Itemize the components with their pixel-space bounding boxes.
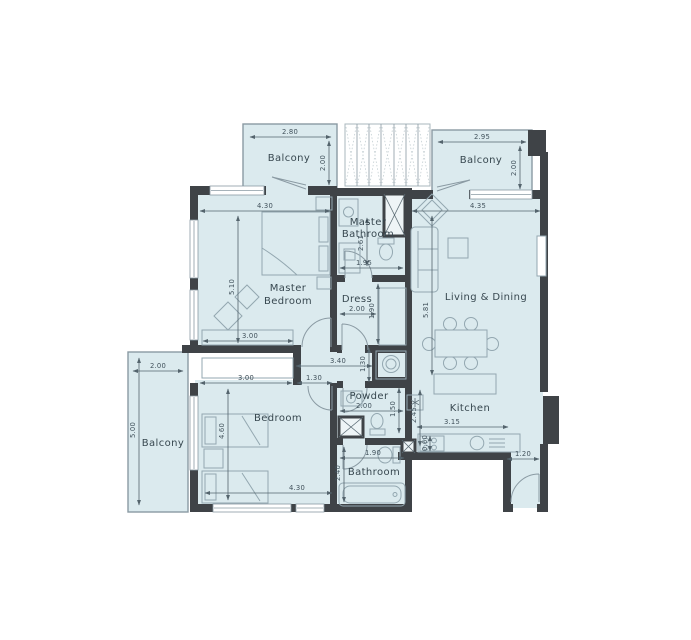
chair-icon xyxy=(444,318,457,331)
label-balcony-left: Balcony xyxy=(142,438,184,449)
island-counter-icon xyxy=(434,374,496,394)
dim-counter-depth: 0.60 xyxy=(421,435,429,451)
dim-living-length: 5.81 xyxy=(422,302,430,318)
dim-master-bedroom-length: 5.10 xyxy=(228,279,236,295)
dim-corridor-width: 1.30 xyxy=(359,356,367,372)
label-powder: Powder xyxy=(350,391,389,402)
label-balcony-top-right: Balcony xyxy=(460,155,502,166)
label-dress: Dress xyxy=(342,294,372,305)
floor-plan-canvas: 2.80 2.95 4.30 4.35 1.95 2.00 3.00 3.40 … xyxy=(0,0,691,640)
dim-balcony-tr-depth: 2.00 xyxy=(510,160,518,176)
chair-icon xyxy=(423,338,436,351)
dim-kitchen-length: 2.45 xyxy=(410,407,418,423)
dim-kitchen-width: 3.15 xyxy=(444,418,460,426)
dim-powder-width: 2.00 xyxy=(356,402,372,410)
dim-balcony-tl-depth: 2.00 xyxy=(319,155,327,171)
dim-master-bathroom-width: 1.95 xyxy=(356,259,372,267)
dim-bedroom-total-width: 4.30 xyxy=(289,484,305,492)
dim-balcony-left-length: 5.00 xyxy=(129,422,137,438)
label-master-bedroom-1: Master xyxy=(270,283,307,294)
chair-icon xyxy=(465,357,478,370)
sofa-icon xyxy=(411,227,438,292)
floor-plan-svg: 2.80 2.95 4.30 4.35 1.95 2.00 3.00 3.40 … xyxy=(0,0,691,640)
dim-bedroom-width: 3.00 xyxy=(238,374,254,382)
dim-balcony-tr-width: 2.95 xyxy=(474,133,490,141)
double-bed-icon xyxy=(262,212,330,275)
label-master-bedroom-2: Bedroom xyxy=(264,296,312,307)
dim-master-bedroom-width: 4.30 xyxy=(257,202,273,210)
label-bedroom: Bedroom xyxy=(254,413,302,424)
louver-panel xyxy=(345,124,430,186)
toilet-icon xyxy=(371,414,383,429)
label-living-dining: Living & Dining xyxy=(445,292,527,303)
dim-balcony-tl-width: 2.80 xyxy=(282,128,298,136)
label-balcony-top-left: Balcony xyxy=(268,153,310,164)
dim-bathroom-width: 1.90 xyxy=(365,449,381,457)
dim-living-width: 4.35 xyxy=(470,202,486,210)
chair-icon xyxy=(465,318,478,331)
dim-bathroom-length: 2.40 xyxy=(334,465,342,481)
label-master-bathroom-1: Master xyxy=(350,217,387,228)
dim-bedroom-door: 1.30 xyxy=(306,374,322,382)
dim-balcony-left-width: 2.00 xyxy=(150,362,166,370)
dim-corridor-length: 3.40 xyxy=(330,357,346,365)
tv-niche xyxy=(537,236,546,276)
label-master-bathroom-2: Bathroom xyxy=(342,229,394,240)
dim-wardrobe-width: 3.00 xyxy=(242,332,258,340)
dim-entrance-width: 1.20 xyxy=(515,450,531,458)
dining-table-icon xyxy=(435,330,487,357)
living-balcony-door-opening xyxy=(433,190,469,199)
balcony-left-rail xyxy=(128,352,188,512)
label-kitchen: Kitchen xyxy=(450,403,490,414)
dim-dress-width: 2.00 xyxy=(349,305,365,313)
dim-bedroom-length: 4.60 xyxy=(218,423,226,439)
dim-powder-length: 1.50 xyxy=(389,401,397,417)
toilet-icon xyxy=(380,244,393,260)
chair-icon xyxy=(444,357,457,370)
label-bathroom: Bathroom xyxy=(348,467,400,478)
dim-dress-length: 1.90 xyxy=(368,303,376,319)
